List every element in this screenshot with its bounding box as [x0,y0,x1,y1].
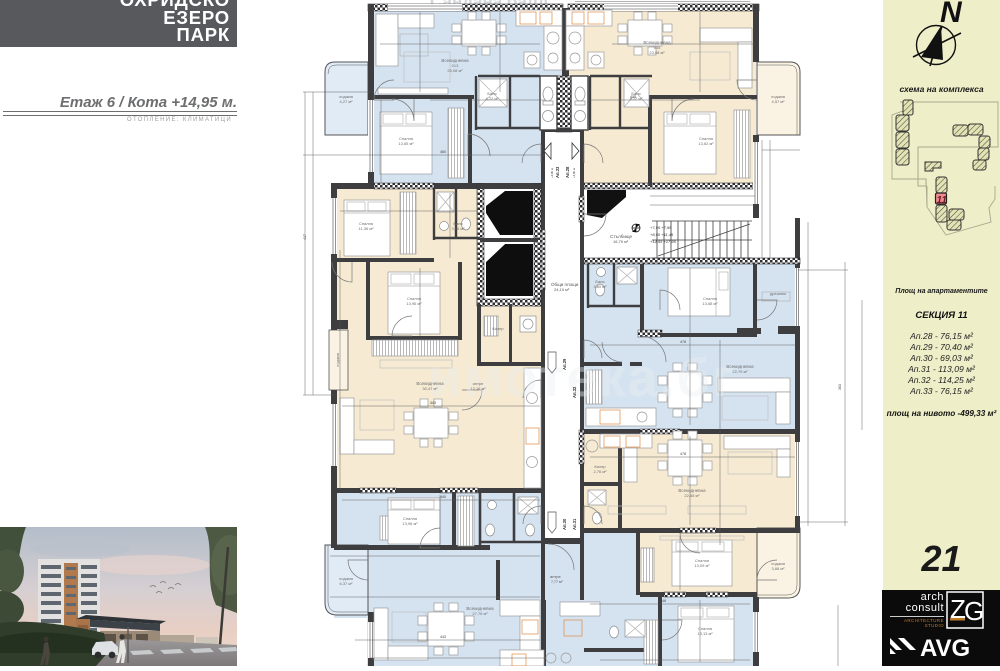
svg-text:22,79 м²: 22,79 м² [732,369,748,374]
svg-text:22,65 м²: 22,65 м² [684,493,700,498]
svg-text:363: 363 [838,384,842,390]
svg-text:Ап.30: Ап.30 [562,518,567,530]
svg-text:478: 478 [680,340,686,344]
svg-text:+7,95 +7,95: +7,95 +7,95 [650,225,672,230]
svg-text:+4,80 м: +4,80 м [550,168,554,178]
svg-text:Ап.28: Ап.28 [565,166,570,178]
svg-text:4,22 м²: 4,22 м² [486,96,500,101]
svg-text:4,57 м²: 4,57 м² [772,99,786,104]
svg-text:7,77 м²: 7,77 м² [551,580,563,584]
svg-text:+14,95 +17,95: +14,95 +17,95 [650,239,677,244]
svg-text:дрешник: дрешник [770,291,786,296]
svg-text:11,36 м²: 11,36 м² [359,226,375,231]
svg-text:3,68 м²: 3,68 м² [772,566,786,571]
svg-text:23,08 м²: 23,08 м² [649,50,665,55]
svg-text:13,96 м²: 13,96 м² [406,301,422,306]
svg-text:Килер: Килер [492,326,504,331]
svg-text:25,08 м²: 25,08 м² [447,68,463,73]
svg-text:антре: антре [550,574,561,579]
svg-text:3,60 м²: 3,60 м² [594,284,608,289]
svg-text:3,76 м²: 3,76 м² [452,226,466,231]
svg-text:13,13 м²: 13,13 м² [697,631,713,636]
svg-text:448: 448 [660,599,666,603]
svg-text:13,65 м²: 13,65 м² [398,141,414,146]
svg-text:417: 417 [303,234,307,240]
svg-text:6,37 м²: 6,37 м² [340,581,354,586]
svg-text:16,79 м²: 16,79 м² [613,239,629,244]
svg-text:G: G [964,596,984,626]
svg-text:24,19 м²: 24,19 м² [554,287,570,292]
svg-text:30,47 м²: 30,47 м² [422,386,438,391]
svg-text:443: 443 [430,401,436,405]
svg-text:+8,65 +11,45: +8,65 +11,45 [650,232,674,237]
svg-text:11: 11 [937,195,948,206]
svg-text:13,96 м²: 13,96 м² [402,521,418,526]
svg-text:2,76 м²: 2,76 м² [594,469,608,474]
svg-text:13,68 м²: 13,68 м² [702,301,718,306]
svg-text:27,75 м²: 27,75 м² [472,611,488,616]
svg-text:478: 478 [680,452,686,456]
svg-text:Ап.29: Ап.29 [562,358,567,370]
svg-text:4,22 м²: 4,22 м² [630,96,644,101]
svg-text:13,62 м²: 13,62 м² [698,141,714,146]
svg-text:+4,80 м: +4,80 м [572,168,576,178]
svg-text:440: 440 [440,495,446,499]
svg-text:460: 460 [440,150,446,154]
svg-text:AVG: AVG [920,635,970,662]
svg-text:Ап.31: Ап.31 [572,518,577,530]
svg-text:Ап.33: Ап.33 [555,166,560,178]
svg-text:12,16 м²: 12,16 м² [470,386,486,391]
svg-text:4,27 м²: 4,27 м² [340,99,354,104]
svg-text:Ап.32: Ап.32 [572,386,577,398]
svg-text:лоджия: лоджия [335,353,340,367]
svg-text:N: N [940,0,963,29]
svg-text:13,09 м²: 13,09 м² [694,563,710,568]
svg-text:443: 443 [440,635,446,639]
